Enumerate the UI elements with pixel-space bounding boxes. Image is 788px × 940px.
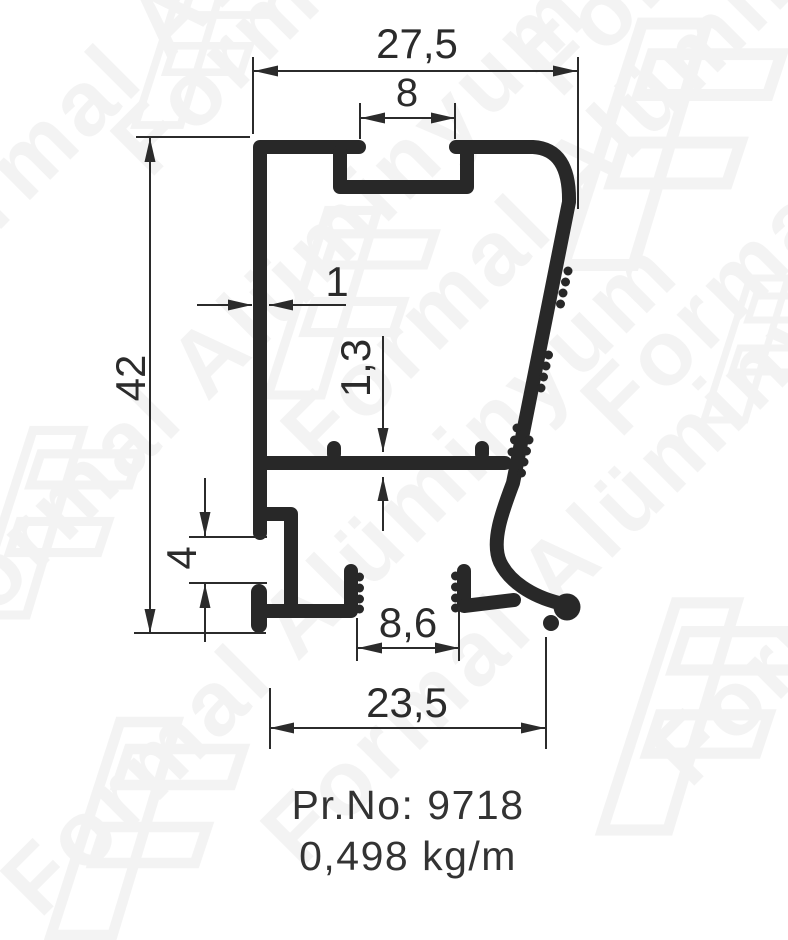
dim-label-slot-opening: 8	[396, 71, 418, 115]
profile-drawing-svg: Formal Alüminyum Formal Alüminyum Formal…	[0, 0, 788, 940]
dim-label-bottom-channel: 8,6	[379, 599, 437, 646]
dim-label-bottom-width: 23,5	[366, 679, 448, 726]
product-number-label: Pr.No: 9718	[291, 782, 524, 828]
dim-label-overall-width: 27,5	[376, 20, 458, 67]
weight-per-meter-label: 0,498 kg/m	[299, 833, 517, 879]
dim-label-overall-height: 42	[107, 355, 154, 402]
profile-foot-bump	[543, 615, 559, 631]
dim-label-side-groove: 4	[158, 546, 205, 569]
technical-drawing-page: Formal Alüminyum Formal Alüminyum Formal…	[0, 0, 788, 940]
dim-label-web-thickness: 1,3	[332, 339, 379, 397]
profile-right-bottom-connector	[464, 600, 514, 606]
dim-label-wall-thickness: 1	[325, 258, 348, 305]
profile-foot-ball	[554, 594, 581, 621]
